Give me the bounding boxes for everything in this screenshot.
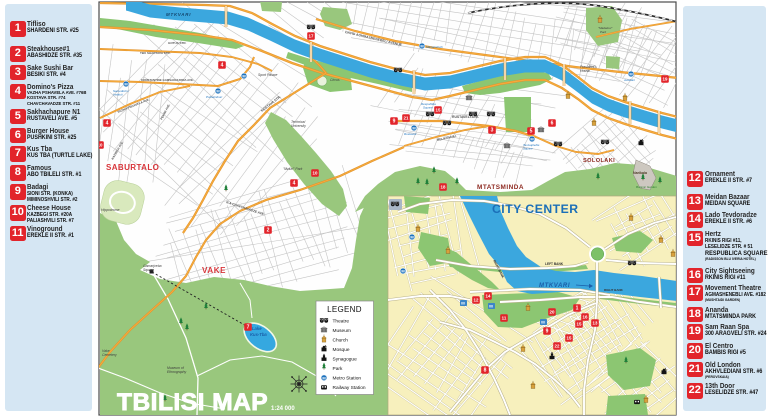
svg-text:1:24 000: 1:24 000 — [271, 406, 295, 412]
svg-text:RIGHT BANK: RIGHT BANK — [604, 288, 624, 292]
svg-text:7: 7 — [247, 325, 250, 331]
svg-text:Avlabari: Avlabari — [623, 78, 635, 82]
svg-text:MTKVARI: MTKVARI — [166, 12, 191, 17]
svg-text:Synagogue: Synagogue — [333, 357, 358, 363]
svg-text:RUSTAVELI AVE.: RUSTAVELI AVE. — [452, 115, 479, 119]
svg-text:University: University — [291, 124, 306, 128]
svg-text:Square: Square — [423, 105, 433, 109]
svg-text:4: 4 — [106, 121, 109, 127]
svg-text:22: 22 — [555, 344, 560, 349]
svg-text:Museum: Museum — [333, 328, 351, 334]
svg-text:4: 4 — [293, 181, 296, 187]
svg-text:Ethnography: Ethnography — [167, 370, 187, 374]
svg-text:Lake: Lake — [252, 326, 262, 331]
svg-text:9: 9 — [546, 329, 549, 335]
svg-text:Marjanishvili: Marjanishvili — [426, 45, 443, 49]
svg-text:8: 8 — [484, 368, 487, 374]
svg-text:MTKVARI: MTKVARI — [539, 283, 570, 289]
svg-text:21: 21 — [404, 116, 409, 121]
svg-text:15: 15 — [436, 108, 441, 113]
svg-text:MTATSMINDA: MTATSMINDA — [477, 184, 524, 191]
svg-text:Mosque: Mosque — [333, 347, 350, 353]
svg-text:House: House — [580, 69, 590, 73]
svg-text:12: 12 — [474, 298, 479, 303]
svg-text:Instituti: Instituti — [113, 92, 123, 96]
svg-text:4: 4 — [221, 63, 224, 69]
svg-text:16: 16 — [583, 315, 588, 320]
svg-text:1: 1 — [576, 306, 579, 312]
svg-text:LEFT BANK: LEFT BANK — [545, 262, 564, 266]
svg-text:13: 13 — [593, 321, 598, 326]
svg-text:10: 10 — [98, 143, 103, 148]
svg-text:19: 19 — [663, 77, 668, 82]
svg-text:Square: Square — [143, 268, 154, 272]
svg-text:5: 5 — [530, 129, 533, 135]
svg-text:Politeknikuri: Politeknikuri — [206, 95, 223, 99]
svg-text:Hippodrome: Hippodrome — [101, 208, 120, 212]
svg-text:Circus: Circus — [330, 78, 340, 82]
svg-text:17: 17 — [309, 34, 314, 39]
svg-text:Rustaveli: Rustaveli — [404, 132, 417, 136]
svg-text:Church: Church — [333, 337, 349, 343]
svg-text:Square: Square — [523, 146, 533, 150]
svg-text:Metro Station: Metro Station — [333, 376, 362, 382]
svg-text:VAKE: VAKE — [202, 266, 226, 275]
svg-text:3: 3 — [491, 128, 494, 134]
svg-text:Cemetery: Cemetery — [102, 353, 117, 357]
svg-text:20: 20 — [550, 310, 555, 315]
svg-text:LEGEND: LEGEND — [327, 305, 362, 314]
svg-text:Kus-Tba: Kus-Tba — [250, 332, 267, 337]
svg-text:GOTUA STR.: GOTUA STR. — [168, 41, 187, 45]
svg-text:10: 10 — [313, 171, 318, 176]
svg-text:Botanic Garden: Botanic Garden — [636, 185, 657, 189]
svg-text:Park: Park — [333, 366, 343, 372]
svg-text:Railway Station: Railway Station — [333, 385, 366, 391]
svg-text:SABURTALO: SABURTALO — [106, 163, 159, 172]
svg-text:2: 2 — [267, 228, 270, 234]
svg-text:Park: Park — [600, 30, 607, 34]
svg-text:"Mziuri" Park: "Mziuri" Park — [283, 167, 303, 171]
svg-text:SOLOLAKI: SOLOLAKI — [583, 158, 615, 164]
svg-text:KONSTANTINE GAMSAKHURDIA AVE.: KONSTANTINE GAMSAKHURDIA AVE. — [141, 78, 194, 82]
svg-text:CITY CENTER: CITY CENTER — [492, 202, 579, 216]
svg-text:15: 15 — [567, 336, 572, 341]
svg-text:15: 15 — [577, 322, 582, 327]
svg-text:6: 6 — [551, 121, 554, 127]
svg-text:9: 9 — [393, 119, 396, 125]
svg-text:14: 14 — [486, 294, 491, 299]
svg-text:TBU SHARTAVA STR.: TBU SHARTAVA STR. — [140, 51, 171, 55]
svg-text:18: 18 — [441, 185, 446, 190]
svg-text:Theatre: Theatre — [333, 318, 350, 324]
svg-text:Narikala: Narikala — [633, 171, 648, 175]
svg-text:11: 11 — [502, 316, 507, 321]
svg-text:TBILISI MAP: TBILISI MAP — [117, 389, 268, 416]
svg-text:Sport Palace: Sport Palace — [258, 73, 278, 77]
